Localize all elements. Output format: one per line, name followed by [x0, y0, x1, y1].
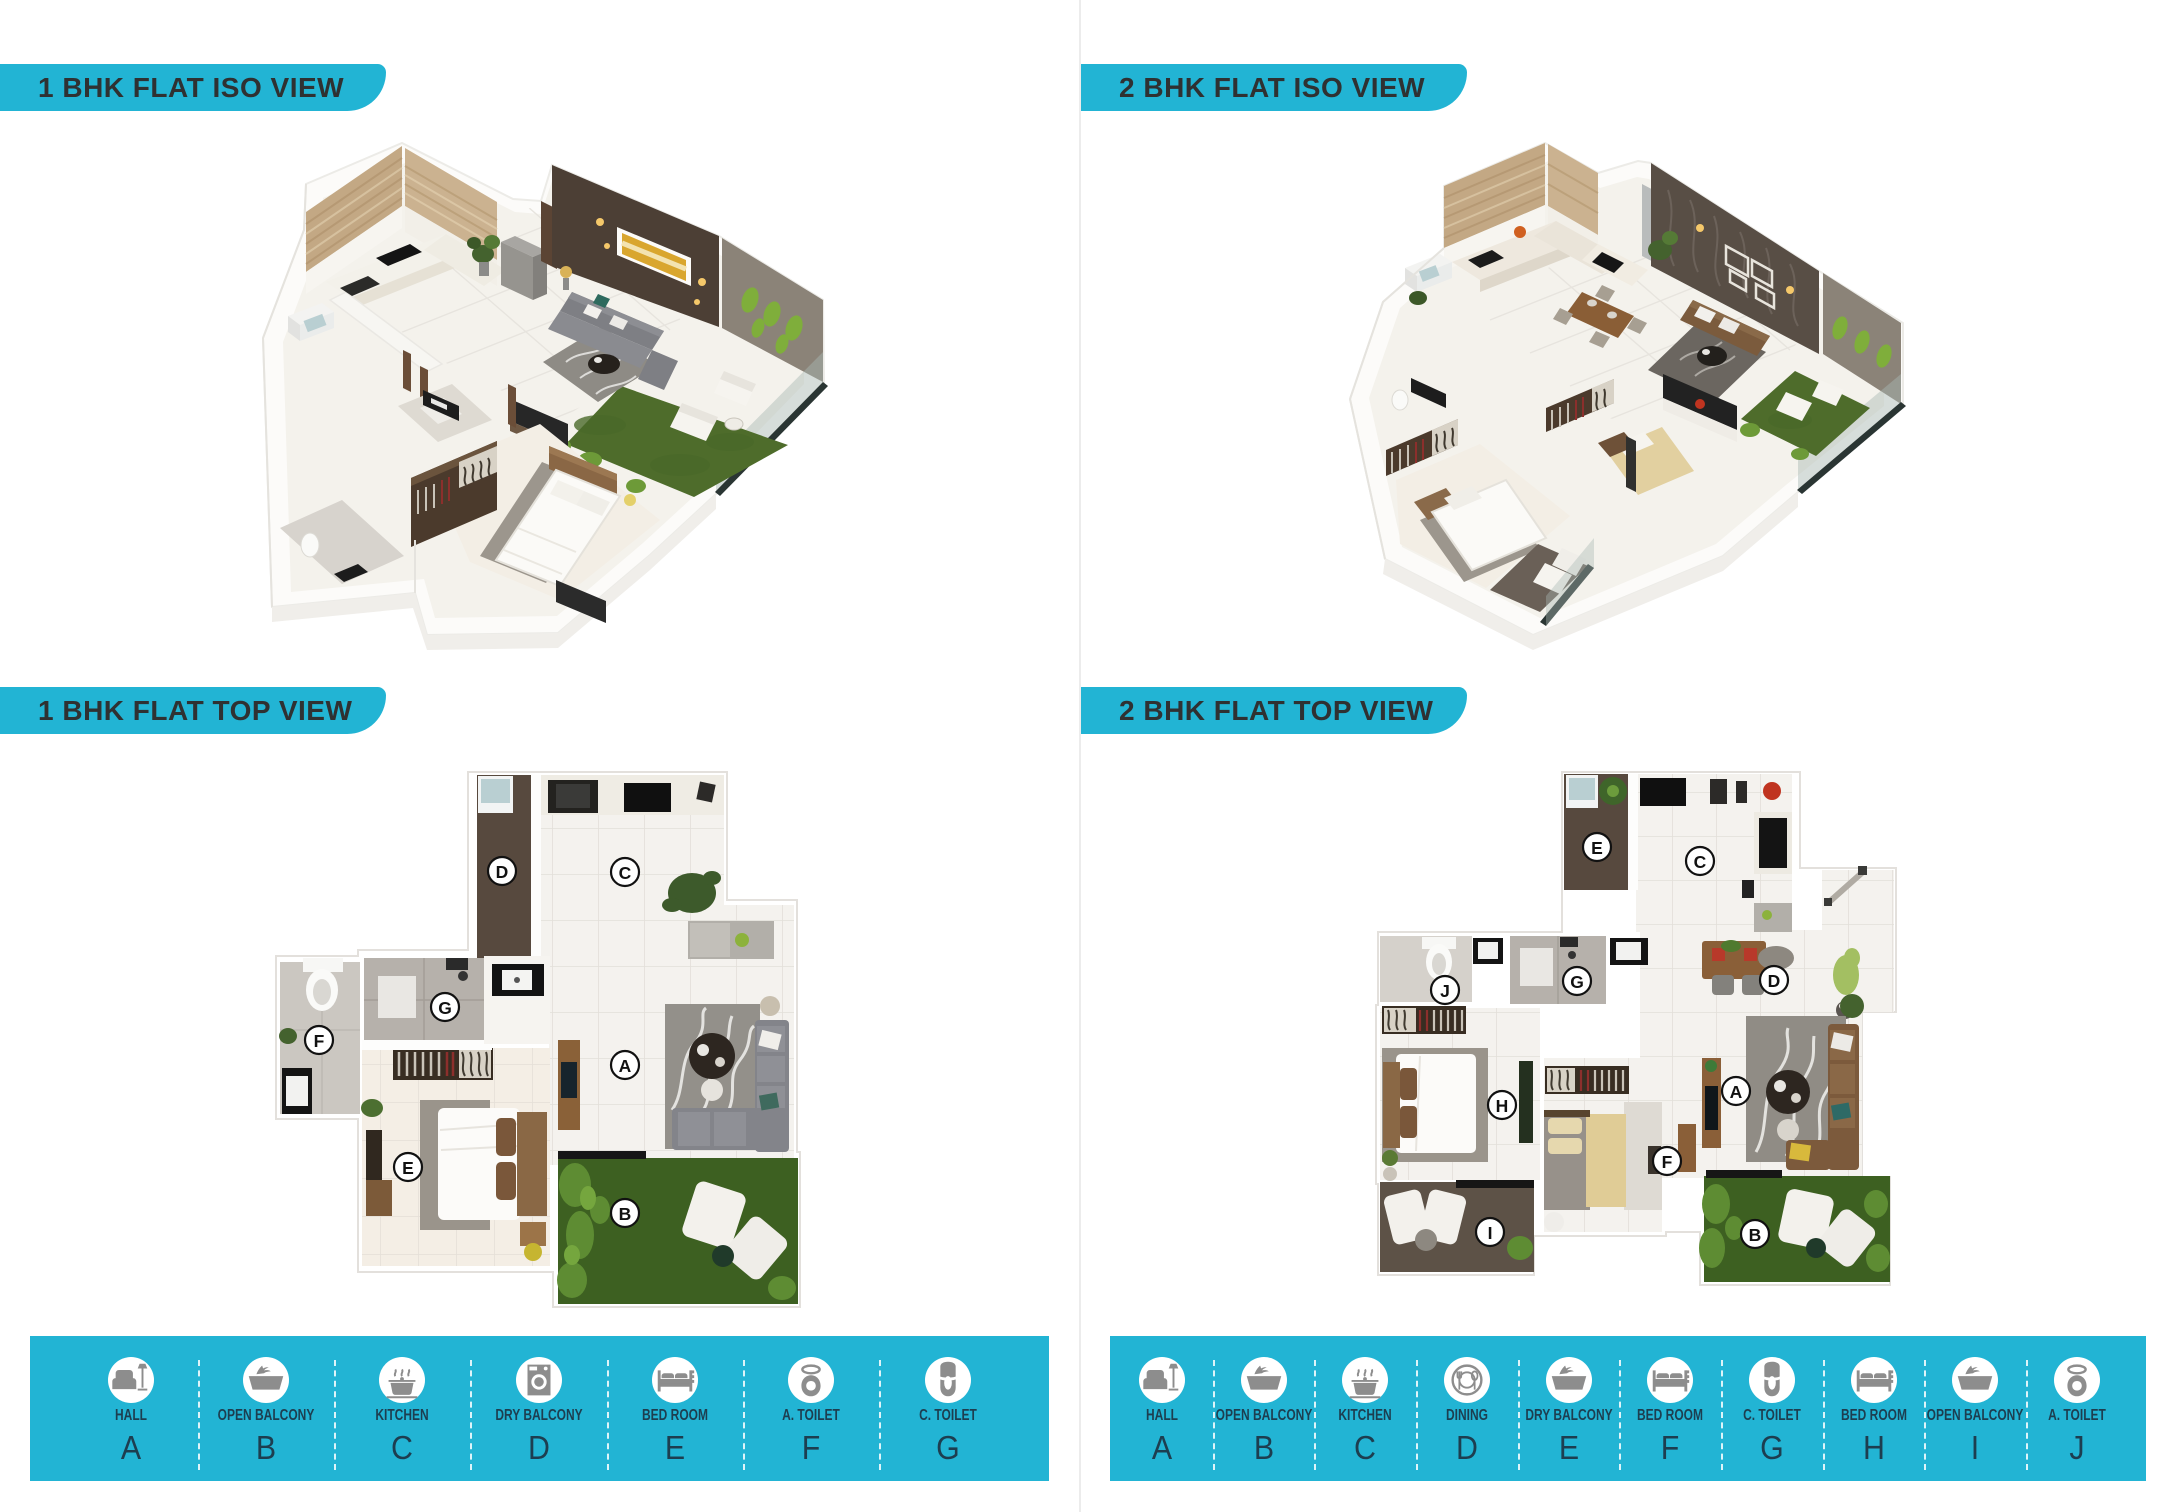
svg-text:D: D [1768, 971, 1781, 991]
svg-text:I: I [1488, 1223, 1493, 1243]
svg-text:C: C [619, 863, 632, 883]
svg-text:A: A [619, 1056, 632, 1076]
svg-text:A: A [1730, 1082, 1743, 1102]
svg-text:B: B [619, 1204, 632, 1224]
svg-text:E: E [1591, 838, 1603, 858]
svg-text:G: G [1570, 972, 1584, 992]
svg-text:E: E [402, 1158, 414, 1178]
svg-text:C: C [1694, 852, 1707, 872]
svg-text:G: G [438, 998, 452, 1018]
svg-text:D: D [496, 862, 509, 882]
svg-text:H: H [1496, 1096, 1509, 1116]
svg-text:J: J [1440, 981, 1450, 1001]
svg-text:F: F [314, 1031, 325, 1051]
svg-text:F: F [1662, 1152, 1673, 1172]
svg-text:B: B [1749, 1225, 1762, 1245]
